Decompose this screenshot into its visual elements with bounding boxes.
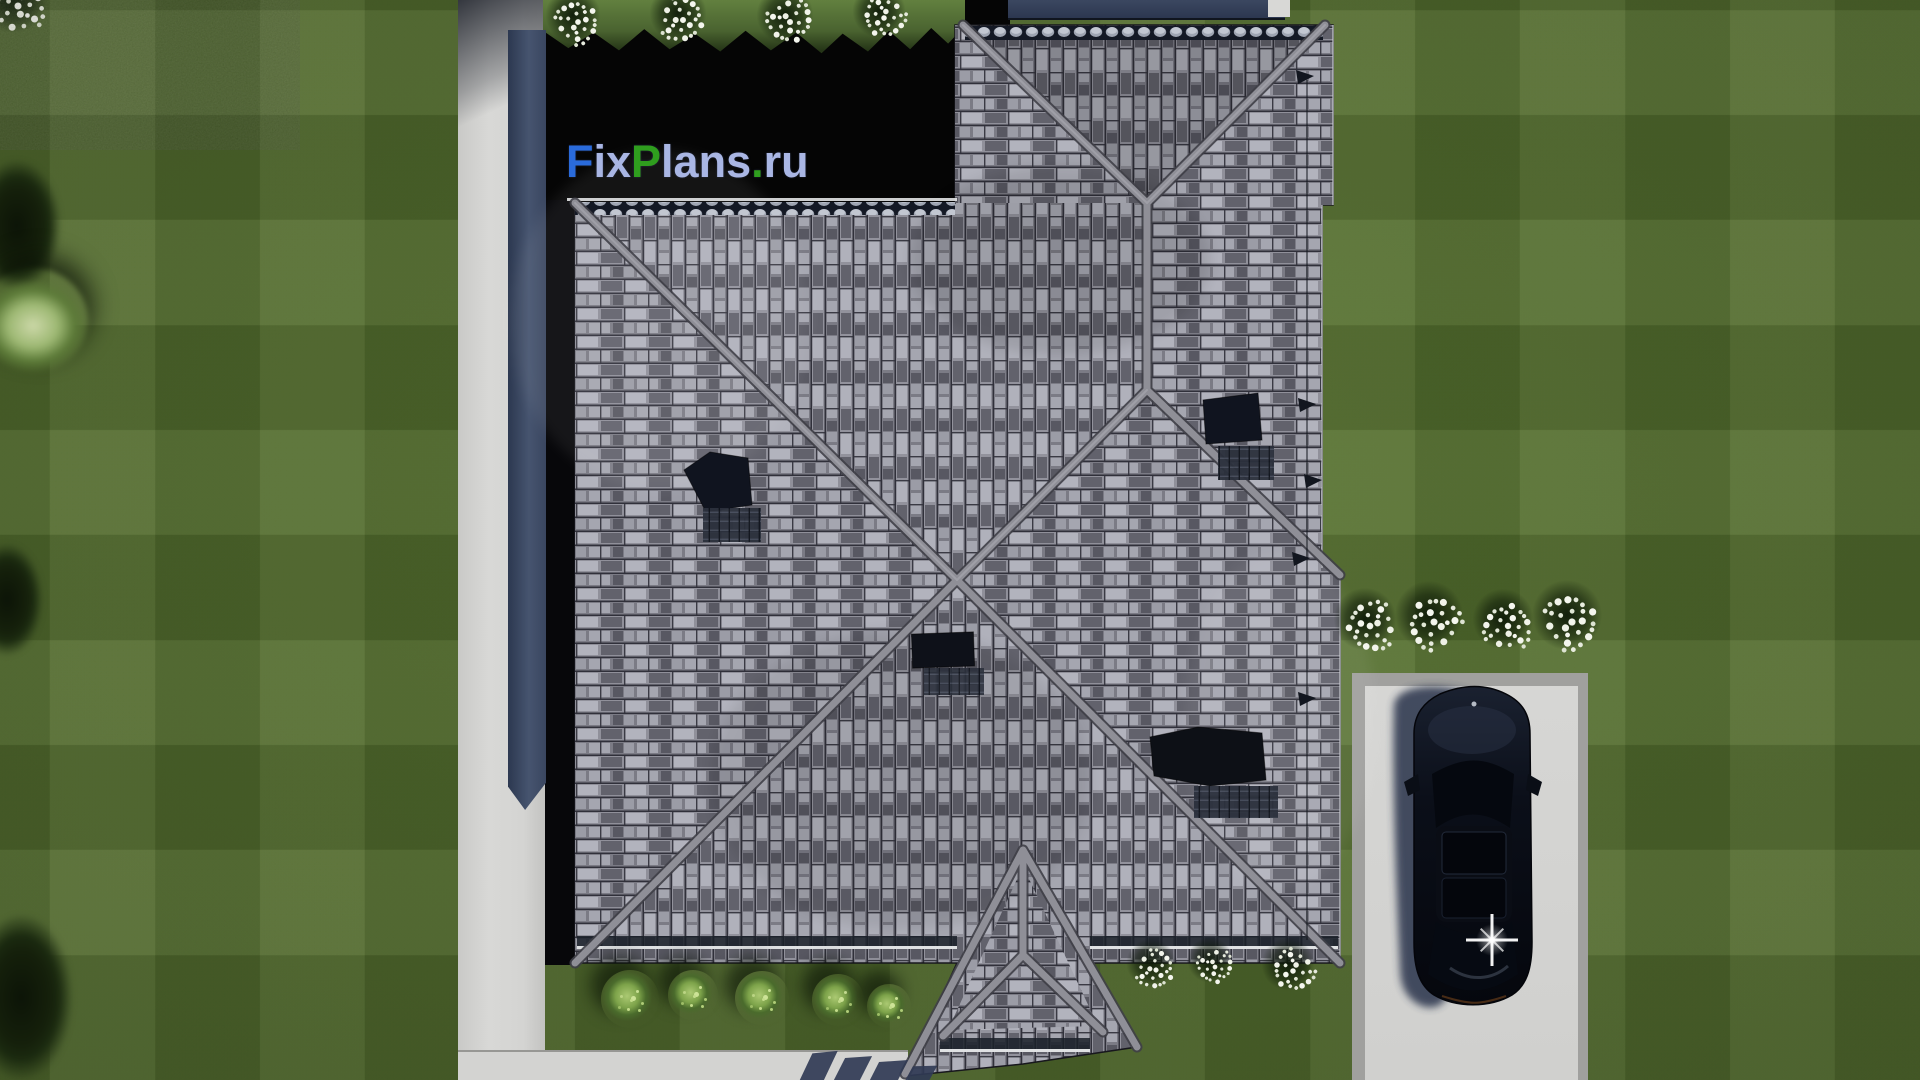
watermark-letter: P bbox=[631, 136, 661, 187]
path-stub-top bbox=[1268, 0, 1290, 17]
flower-bush bbox=[0, 0, 51, 39]
watermark-letter: . bbox=[751, 136, 764, 187]
flower-bush bbox=[1478, 596, 1538, 656]
flower-bush bbox=[1267, 945, 1319, 997]
terrace-wall bbox=[1008, 0, 1285, 20]
shrub bbox=[812, 974, 864, 1026]
watermark-letter: ru bbox=[764, 136, 809, 187]
watermark-letter: ix bbox=[594, 136, 632, 187]
flower-bush bbox=[762, 0, 818, 50]
flower-bush bbox=[551, 0, 605, 49]
flower-bush bbox=[858, 0, 910, 44]
flower-bush bbox=[1401, 589, 1467, 655]
fixplans-watermark: FixPlans.ru bbox=[566, 139, 809, 184]
flower-bush bbox=[1339, 595, 1401, 657]
side-fence-shadow bbox=[508, 30, 546, 810]
car bbox=[1380, 678, 1550, 1023]
sunroof-rear bbox=[1442, 878, 1506, 918]
shrub bbox=[735, 971, 789, 1025]
flower-bush bbox=[655, 0, 711, 48]
shadow-gap-west bbox=[545, 200, 577, 965]
shrub bbox=[867, 984, 911, 1028]
hood-highlight bbox=[1428, 706, 1516, 754]
render-viewport: FixPlans.ru bbox=[0, 0, 1920, 1080]
roof-antenna bbox=[1472, 702, 1477, 707]
flower-bush bbox=[1193, 945, 1237, 989]
watermark-letter: lans bbox=[661, 136, 751, 187]
sunroof-front bbox=[1442, 832, 1506, 874]
shrub bbox=[601, 970, 659, 1028]
shrub bbox=[668, 970, 718, 1020]
flower-bush bbox=[1538, 588, 1606, 656]
flower-bush bbox=[1132, 946, 1180, 994]
watermark-letter: F bbox=[566, 136, 594, 187]
